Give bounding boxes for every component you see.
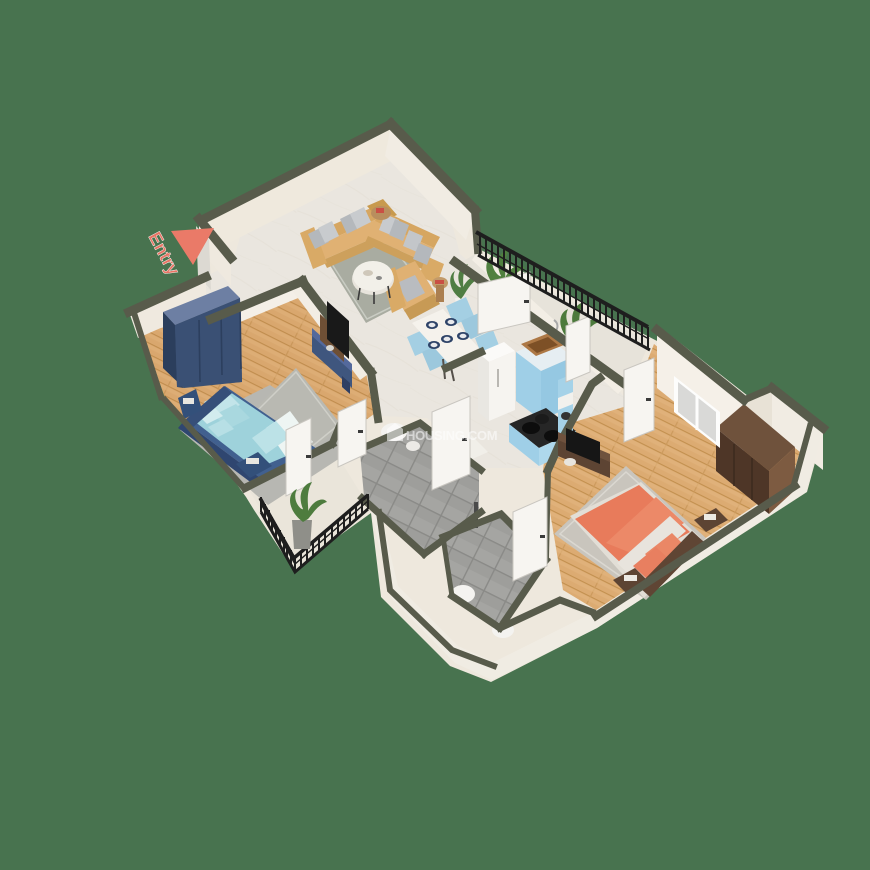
- svg-text:HOUSING.COM: HOUSING.COM: [406, 428, 497, 443]
